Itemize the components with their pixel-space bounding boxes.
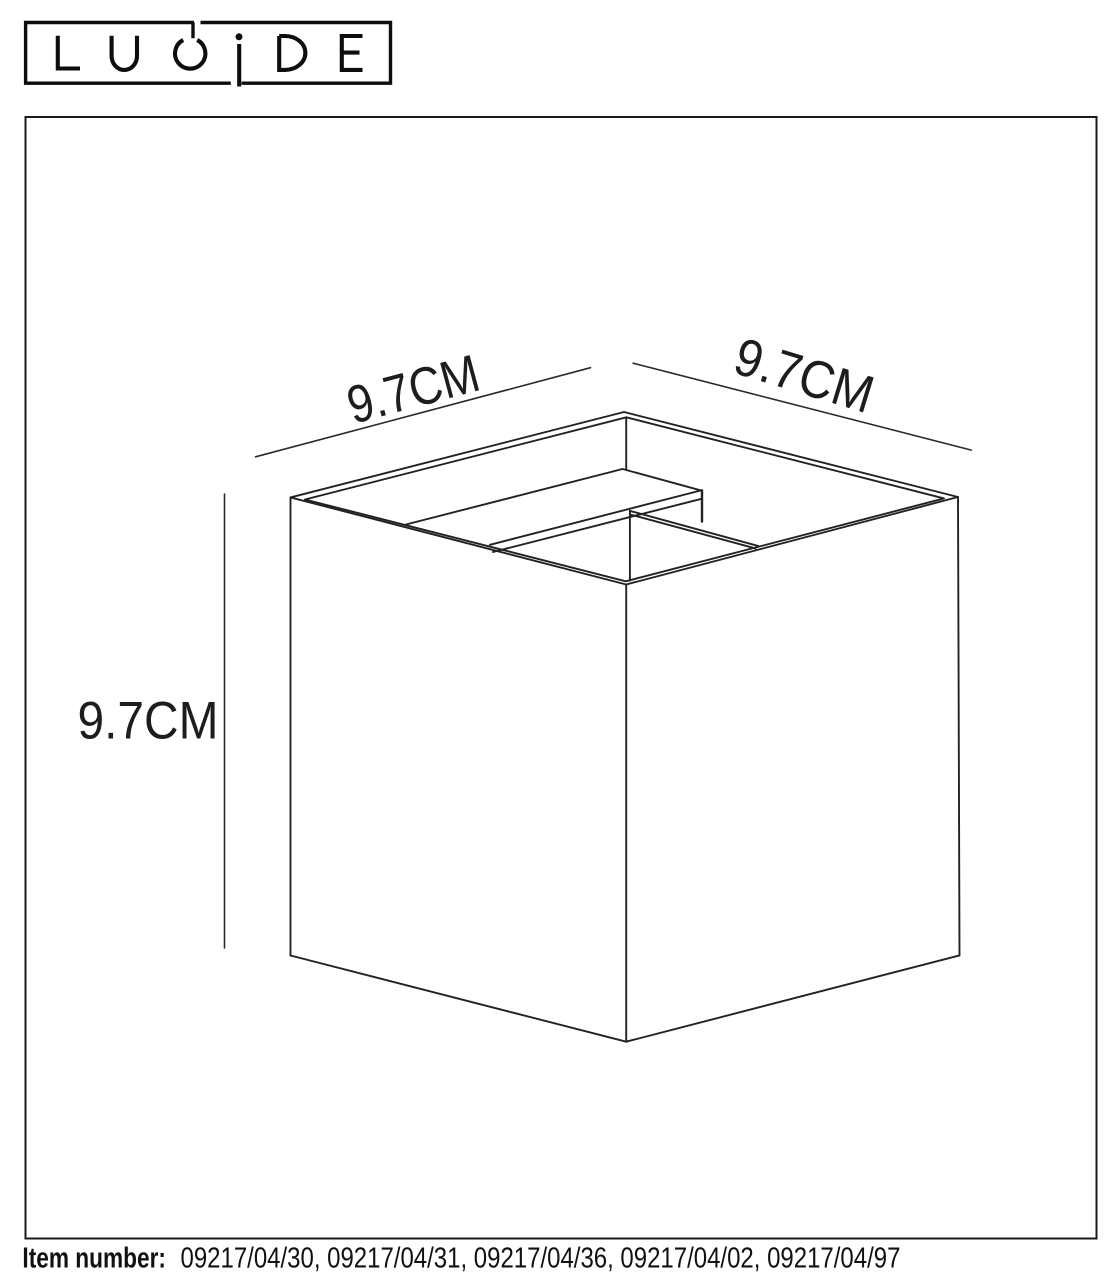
svg-text:9.7CM: 9.7CM bbox=[78, 691, 219, 750]
svg-text:Item number:: Item number: bbox=[22, 1243, 166, 1275]
svg-text:09217/04/30, 09217/04/31, 0921: 09217/04/30, 09217/04/31, 09217/04/36, 0… bbox=[181, 1243, 901, 1275]
svg-text:9.7CM: 9.7CM bbox=[728, 327, 881, 425]
svg-text:9.7CM: 9.7CM bbox=[341, 344, 486, 436]
